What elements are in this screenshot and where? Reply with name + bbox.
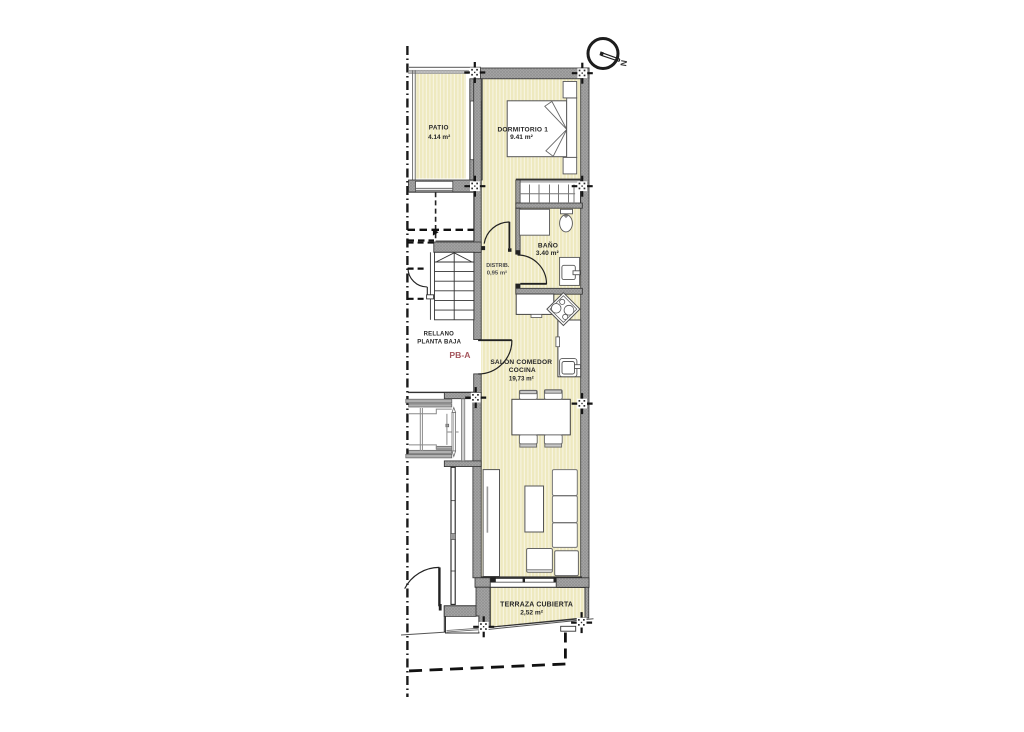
svg-text:DORMITORIO 1: DORMITORIO 1 <box>497 127 548 134</box>
svg-text:TERRAZA CUBIERTA: TERRAZA CUBIERTA <box>500 602 573 609</box>
svg-text:3.40 m²: 3.40 m² <box>536 250 560 257</box>
svg-text:PB-A: PB-A <box>449 350 470 360</box>
svg-text:DISTRIB.: DISTRIB. <box>486 263 510 269</box>
svg-text:0,95 m²: 0,95 m² <box>487 269 507 276</box>
svg-text:SALON COMEDOR: SALON COMEDOR <box>490 359 552 366</box>
svg-text:PATIO: PATIO <box>429 125 449 132</box>
svg-text:4.14 m²: 4.14 m² <box>428 134 450 141</box>
svg-text:2,52 m²: 2,52 m² <box>520 610 544 617</box>
svg-text:9.41 m²: 9.41 m² <box>510 134 534 141</box>
svg-text:19,73 m²: 19,73 m² <box>509 375 534 382</box>
svg-text:COCINA: COCINA <box>509 367 536 374</box>
svg-text:BAÑO: BAÑO <box>538 241 558 250</box>
svg-text:RELLANO: RELLANO <box>424 332 455 338</box>
svg-text:PLANTA BAJA: PLANTA BAJA <box>417 340 461 346</box>
